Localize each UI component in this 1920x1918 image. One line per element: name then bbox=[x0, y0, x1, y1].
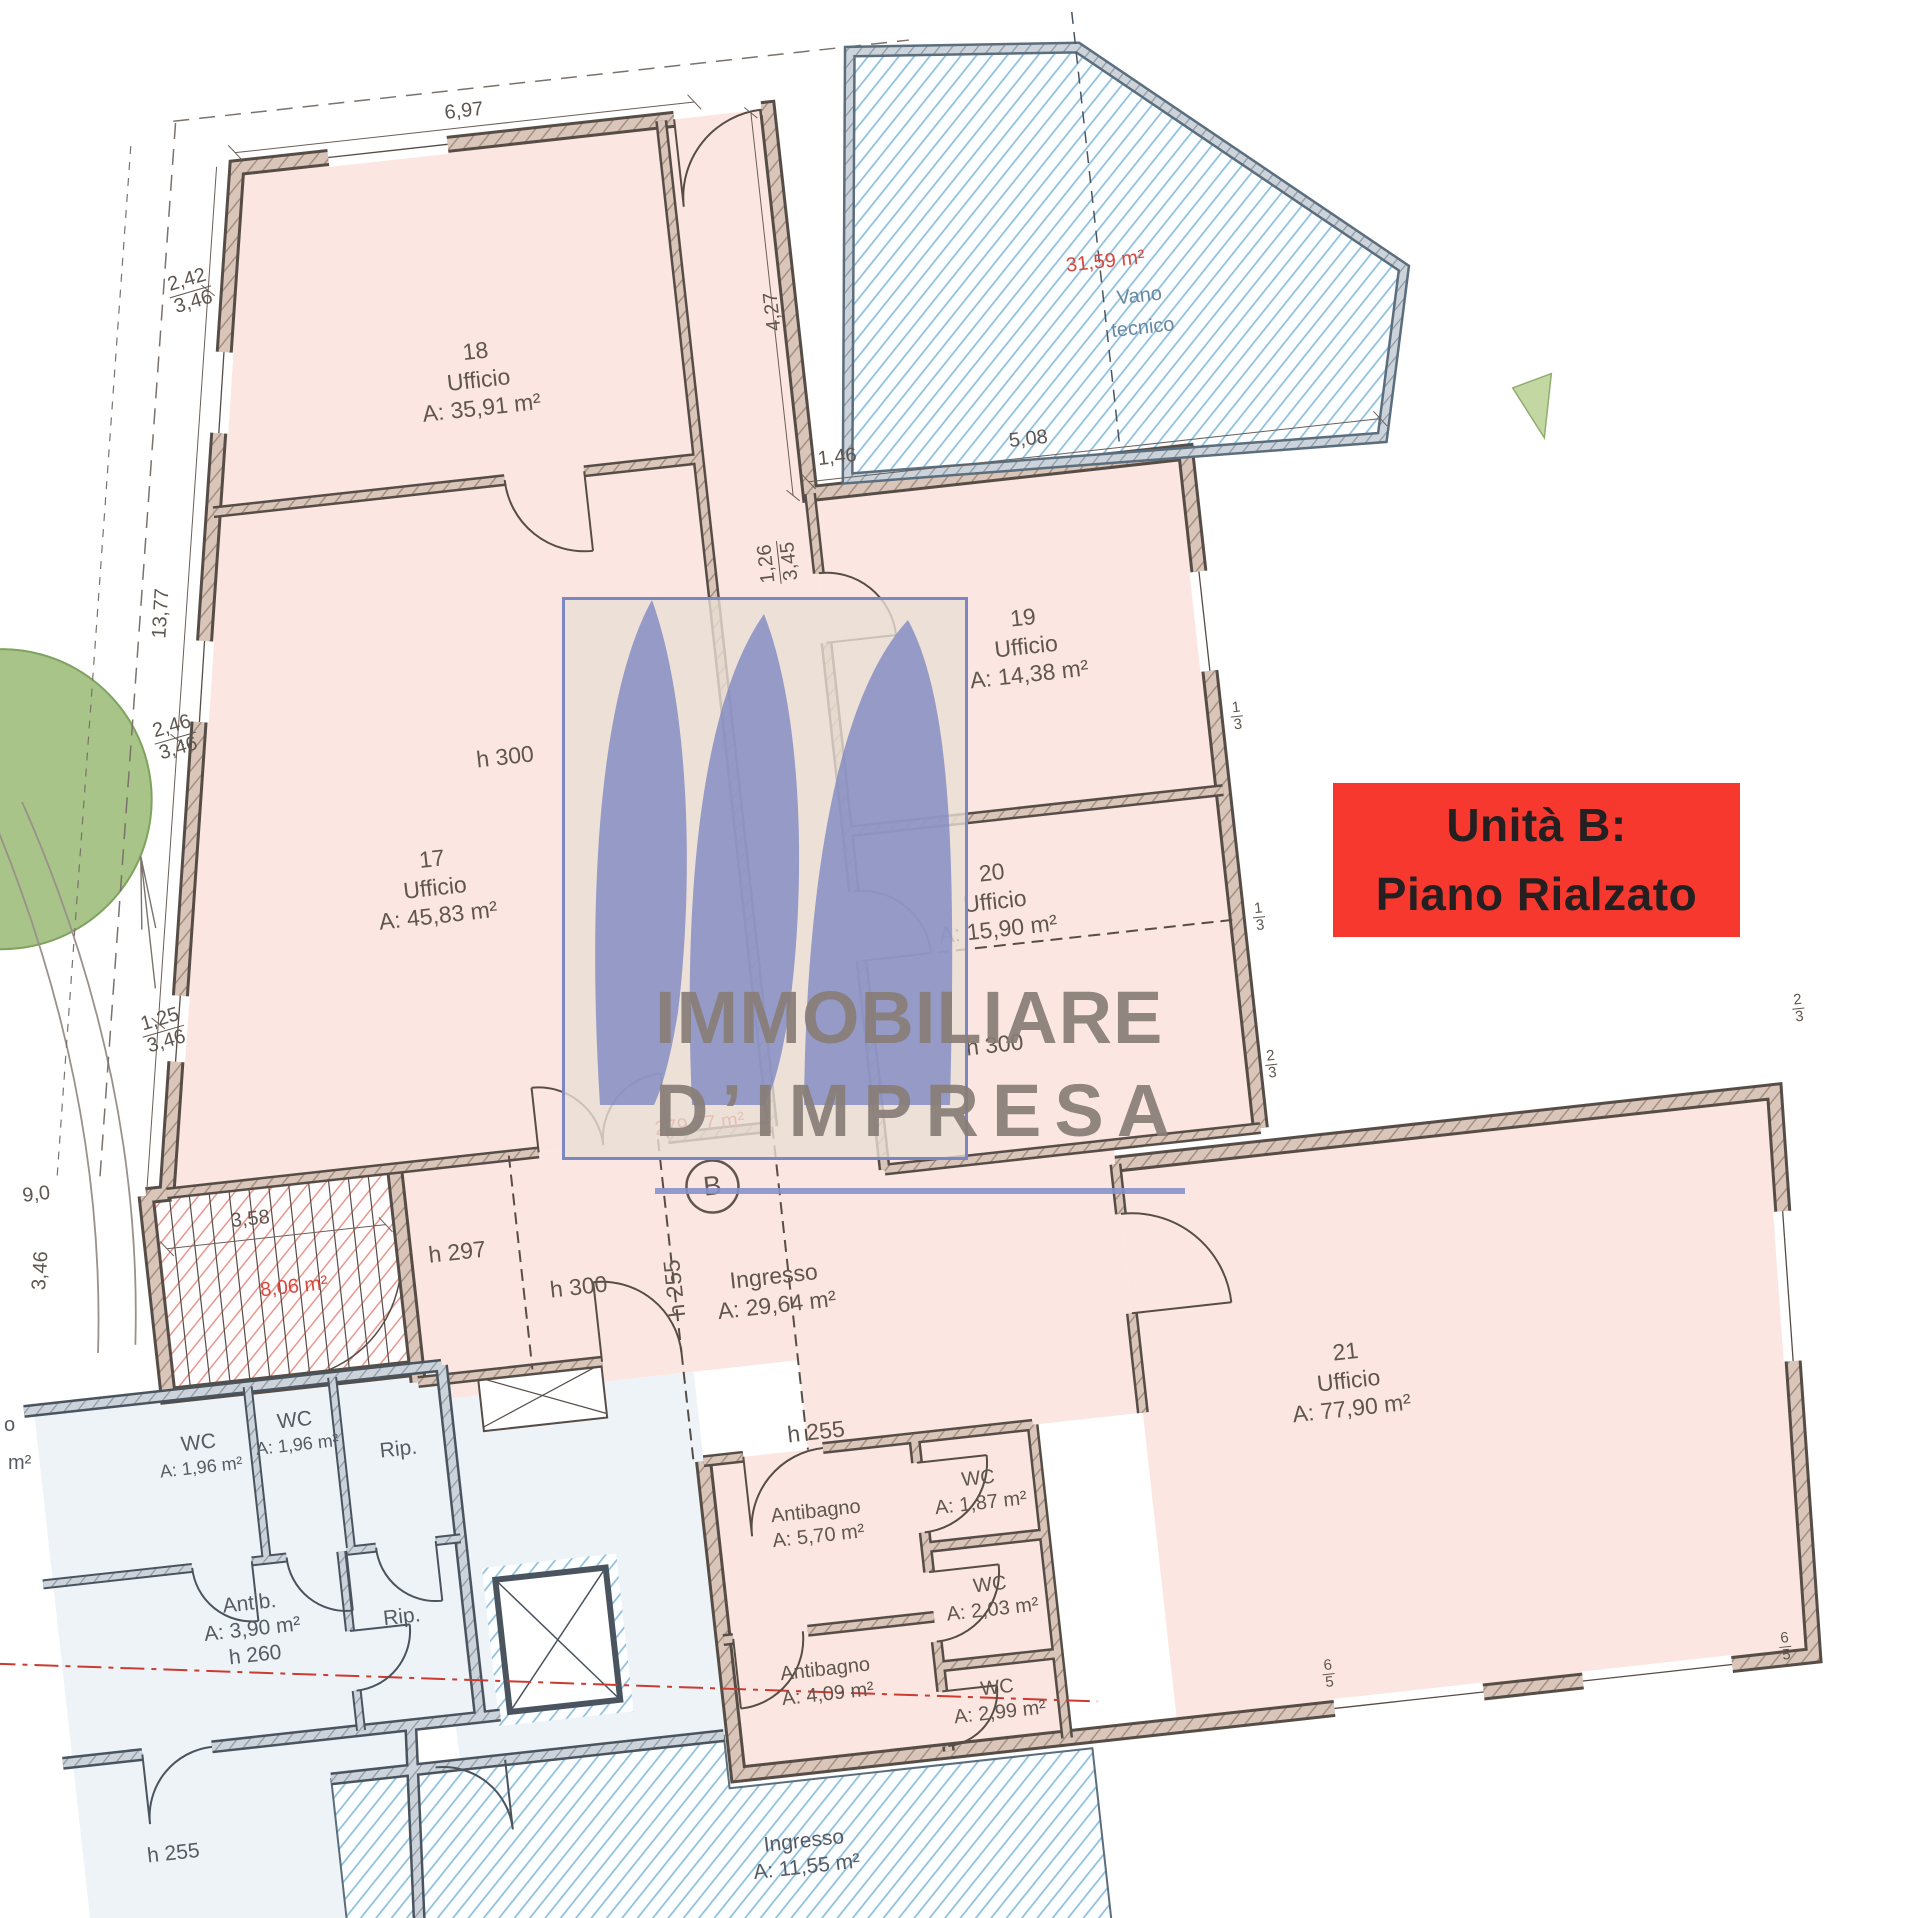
stairs-hatch bbox=[146, 1168, 417, 1395]
rooms-18-17-fill bbox=[56, 121, 772, 1194]
room-21-fill bbox=[1115, 1091, 1836, 1725]
north-arrow bbox=[134, 856, 163, 990]
floor-plan-drawing bbox=[0, 0, 1920, 1918]
green-patch bbox=[1512, 374, 1559, 441]
wc-cluster-fill bbox=[704, 1425, 1068, 1774]
floor-plan-page: 18 Ufficio A: 35,91 m² h 300 17 Ufficio … bbox=[0, 0, 1920, 1918]
hall-fill bbox=[778, 1144, 1143, 1449]
